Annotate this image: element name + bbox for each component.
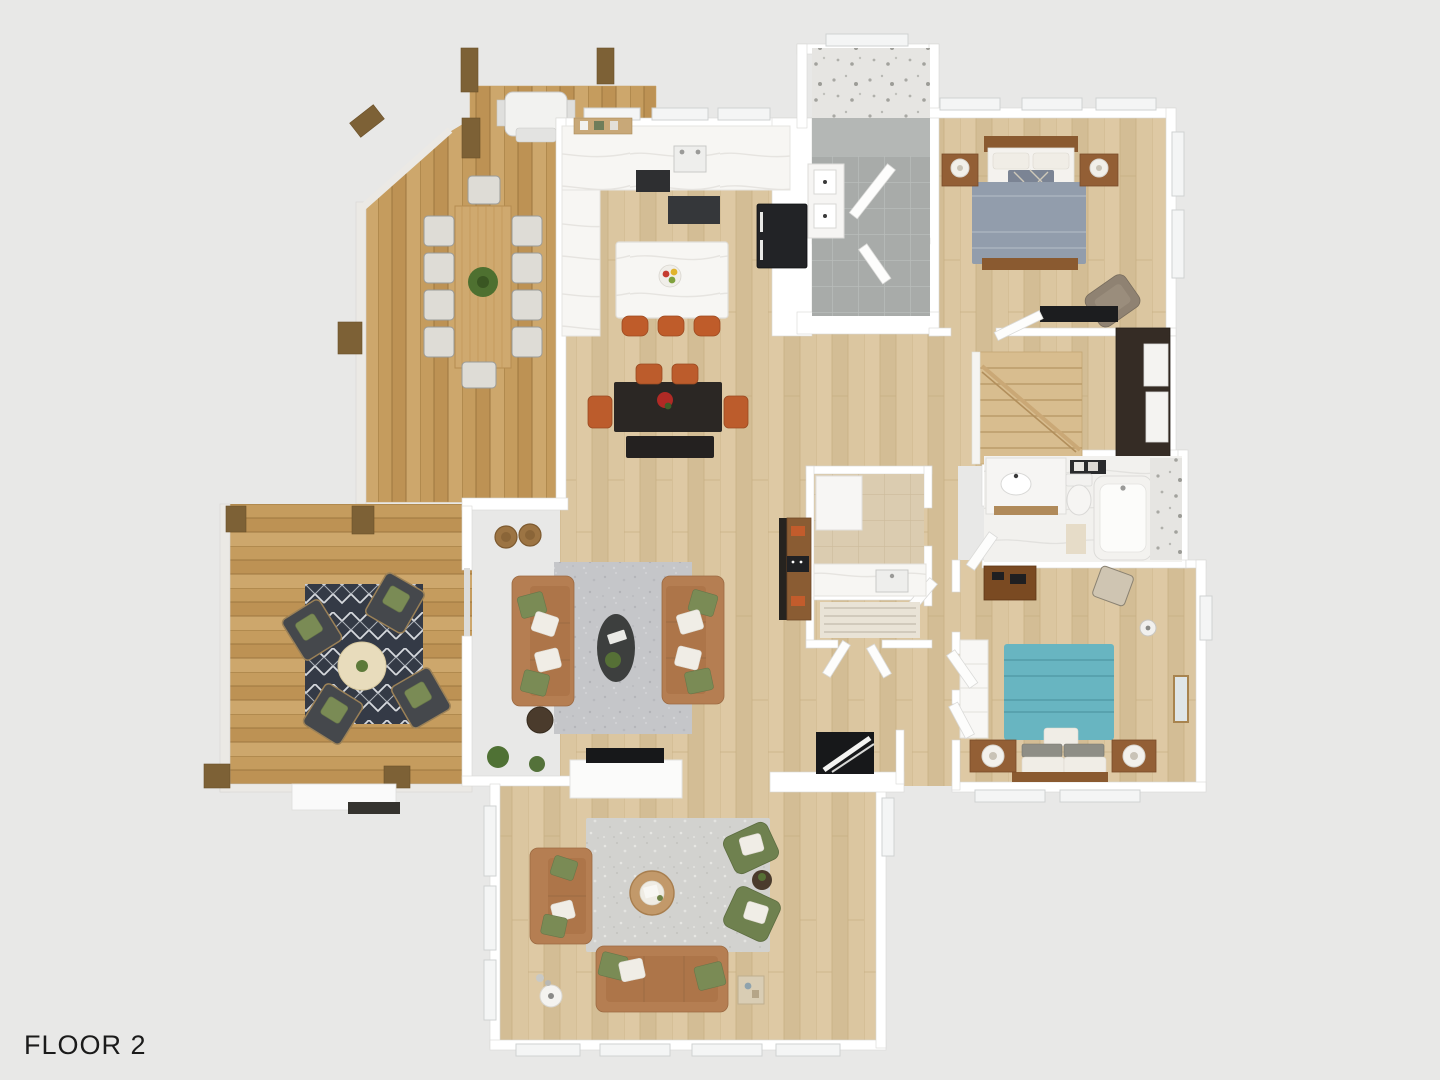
shower <box>812 48 930 118</box>
slider-door-track <box>464 568 470 636</box>
accent-pillow <box>1064 744 1104 757</box>
headboard <box>1012 772 1108 782</box>
sofa-left <box>512 576 574 706</box>
mirror <box>1174 676 1188 722</box>
floor-plant <box>529 756 545 772</box>
double-vanity <box>808 164 844 238</box>
wardrobe <box>1116 328 1170 464</box>
deck-step-shadow <box>348 802 400 814</box>
tv-console <box>1040 306 1118 322</box>
entry-baskets <box>495 524 541 548</box>
lower-deck <box>204 504 472 814</box>
tv <box>586 748 664 763</box>
end-table <box>738 976 764 1004</box>
duvet <box>972 182 1086 264</box>
bathroom-main <box>808 48 930 316</box>
cooktop <box>636 170 670 192</box>
floor-label: FLOOR 2 <box>24 1030 147 1061</box>
floor-plan-rendering <box>0 0 1440 1080</box>
refrigerator <box>757 204 807 268</box>
deck-railing <box>220 504 230 792</box>
bar-stools <box>622 316 720 336</box>
vanity <box>986 458 1066 515</box>
bathtub <box>1094 476 1152 560</box>
sofa-right <box>662 576 724 704</box>
media-console <box>779 518 811 620</box>
utility-counter <box>814 564 926 596</box>
bathroom-2 <box>966 456 1182 570</box>
footboard <box>982 258 1078 270</box>
bath-mat <box>1066 524 1086 554</box>
shower-wall <box>812 118 930 156</box>
sofa <box>596 946 728 1012</box>
dining-bench <box>626 436 714 458</box>
stairwell-down <box>816 732 874 774</box>
duvet <box>1004 644 1114 740</box>
coffee-table <box>597 614 635 682</box>
bed-1 <box>972 136 1086 270</box>
fruit-bowl <box>659 265 681 287</box>
tub-tile-wall <box>1150 458 1182 560</box>
floor-plan-page: FLOOR 2 <box>0 0 1440 1080</box>
kitchen-mat <box>668 196 720 224</box>
staircase <box>972 352 1082 464</box>
round-coffee-table <box>630 871 674 915</box>
toilet <box>1066 474 1092 515</box>
loveseat <box>530 848 592 944</box>
floor-plant <box>487 746 509 768</box>
side-table <box>527 707 553 733</box>
outdoor-dining-table <box>455 206 511 368</box>
cabinet <box>816 476 862 530</box>
accent-pillow <box>1022 744 1062 757</box>
kitchen-sink <box>674 146 706 172</box>
kitchen-counter-left <box>562 190 600 336</box>
desk <box>984 566 1036 600</box>
closet-shelving <box>820 602 920 638</box>
